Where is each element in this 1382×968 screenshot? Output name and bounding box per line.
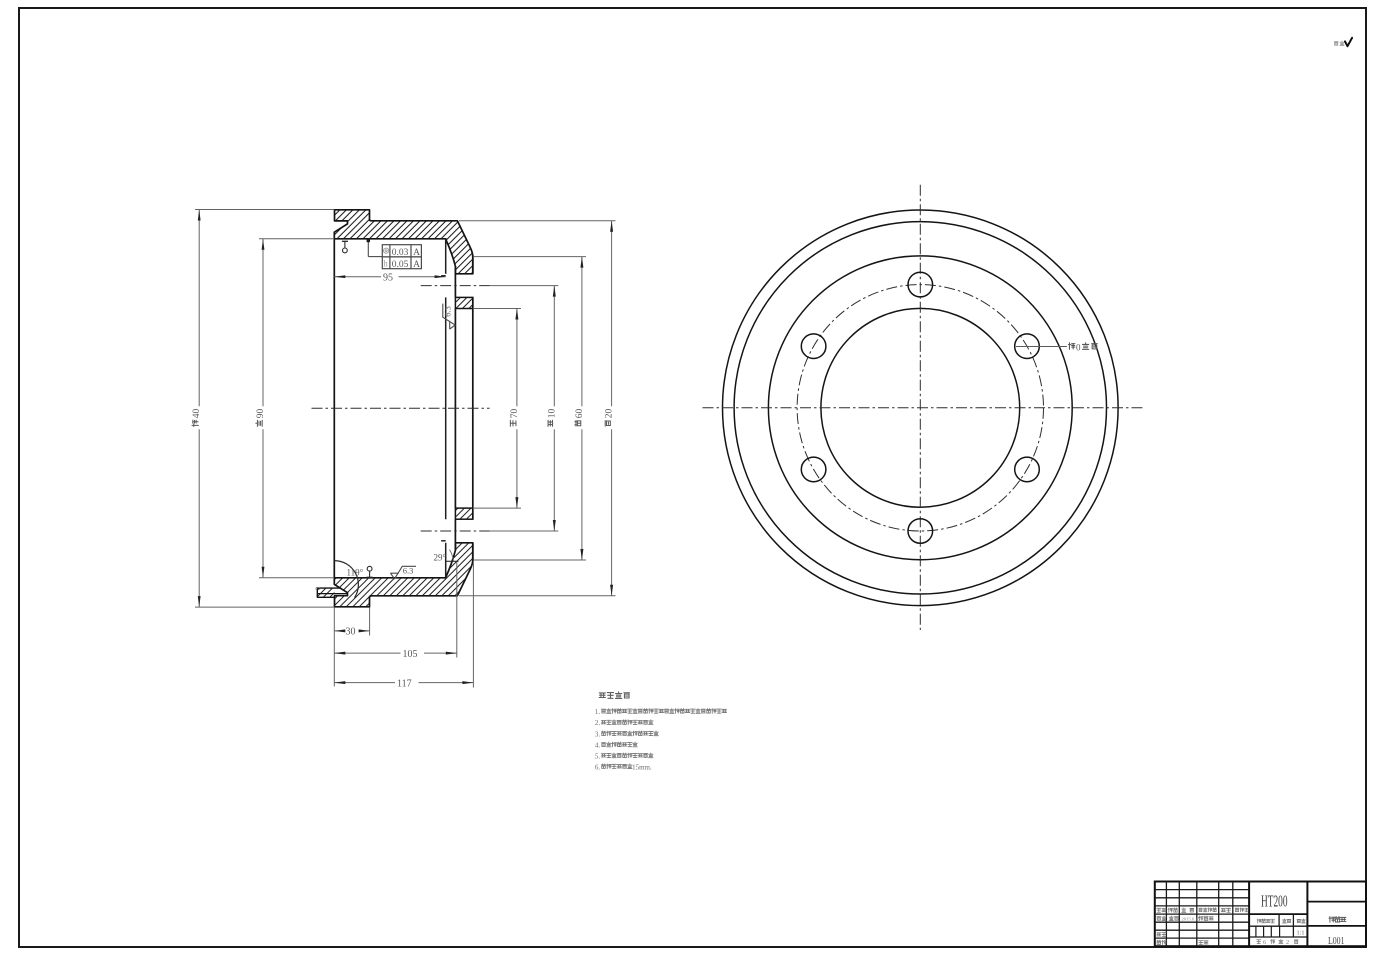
svg-text:2.: 2. [595, 719, 601, 727]
svg-text:95: 95 [383, 272, 393, 283]
svg-text:30: 30 [346, 627, 356, 638]
svg-text:6.3: 6.3 [443, 306, 453, 317]
svg-text:4.: 4. [595, 742, 601, 750]
svg-text:40: 40 [192, 409, 202, 419]
svg-text:6.3: 6.3 [403, 566, 414, 576]
svg-text:6: 6 [1263, 939, 1266, 946]
svg-text:1.: 1. [595, 708, 601, 716]
svg-text:90: 90 [256, 409, 266, 419]
svg-text:h: h [383, 259, 388, 269]
svg-text:L001: L001 [1328, 936, 1345, 947]
svg-text:1:1: 1:1 [1297, 930, 1305, 937]
svg-text:2015.6.15: 2015.6.15 [1182, 917, 1201, 922]
svg-text:6.: 6. [595, 763, 601, 771]
svg-text:5.: 5. [595, 752, 601, 760]
svg-text:29°: 29° [434, 553, 447, 563]
svg-text:117: 117 [397, 678, 412, 689]
svg-text:20: 20 [605, 409, 615, 419]
svg-text:0.05: 0.05 [392, 260, 409, 270]
svg-text:119°: 119° [347, 567, 364, 577]
svg-text:3.: 3. [595, 730, 601, 738]
svg-text:15mm.: 15mm. [632, 763, 652, 771]
svg-text:A: A [413, 260, 420, 270]
svg-text:0.03: 0.03 [392, 248, 409, 258]
svg-text:0: 0 [1076, 343, 1081, 353]
svg-text:60: 60 [575, 409, 585, 419]
svg-text:2: 2 [1286, 939, 1289, 946]
svg-text:A: A [413, 248, 420, 258]
svg-text:10: 10 [547, 409, 557, 419]
svg-text:70: 70 [510, 409, 520, 419]
svg-text:HT200: HT200 [1261, 891, 1288, 910]
svg-text:105: 105 [403, 649, 418, 660]
